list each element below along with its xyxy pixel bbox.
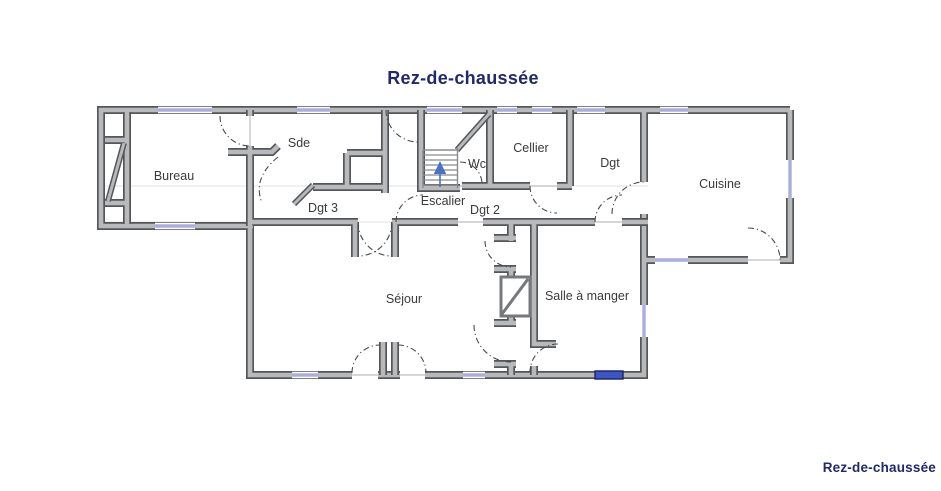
room-label-dgt3: Dgt 3: [308, 201, 338, 215]
highlighted-window: [595, 371, 623, 379]
room-label-dgt: Dgt: [600, 156, 620, 170]
staircase: [423, 148, 458, 188]
corner-title: Rez-de-chaussée: [823, 460, 937, 475]
page-title: Rez-de-chaussée: [387, 68, 539, 88]
room-label-wc: Wc: [468, 157, 486, 171]
room-label-cuisine: Cuisine: [699, 177, 741, 191]
floor-plan-drawing: Bureau Sde Dgt 3 Escalier Wc Dgt 2 Celli…: [0, 0, 941, 491]
room-label-escalier: Escalier: [421, 194, 465, 208]
floor-plan-page: Bureau Sde Dgt 3 Escalier Wc Dgt 2 Celli…: [0, 0, 941, 491]
construction-guides: [101, 186, 648, 375]
chimney: [501, 277, 530, 316]
room-label-cellier: Cellier: [513, 141, 548, 155]
room-label-dgt2: Dgt 2: [470, 203, 500, 217]
room-label-salle-a-manger: Salle à manger: [545, 289, 629, 303]
room-label-bureau: Bureau: [154, 169, 194, 183]
interior-walls: [105, 110, 648, 375]
room-label-sde: Sde: [288, 136, 310, 150]
room-label-sejour: Séjour: [386, 292, 422, 306]
